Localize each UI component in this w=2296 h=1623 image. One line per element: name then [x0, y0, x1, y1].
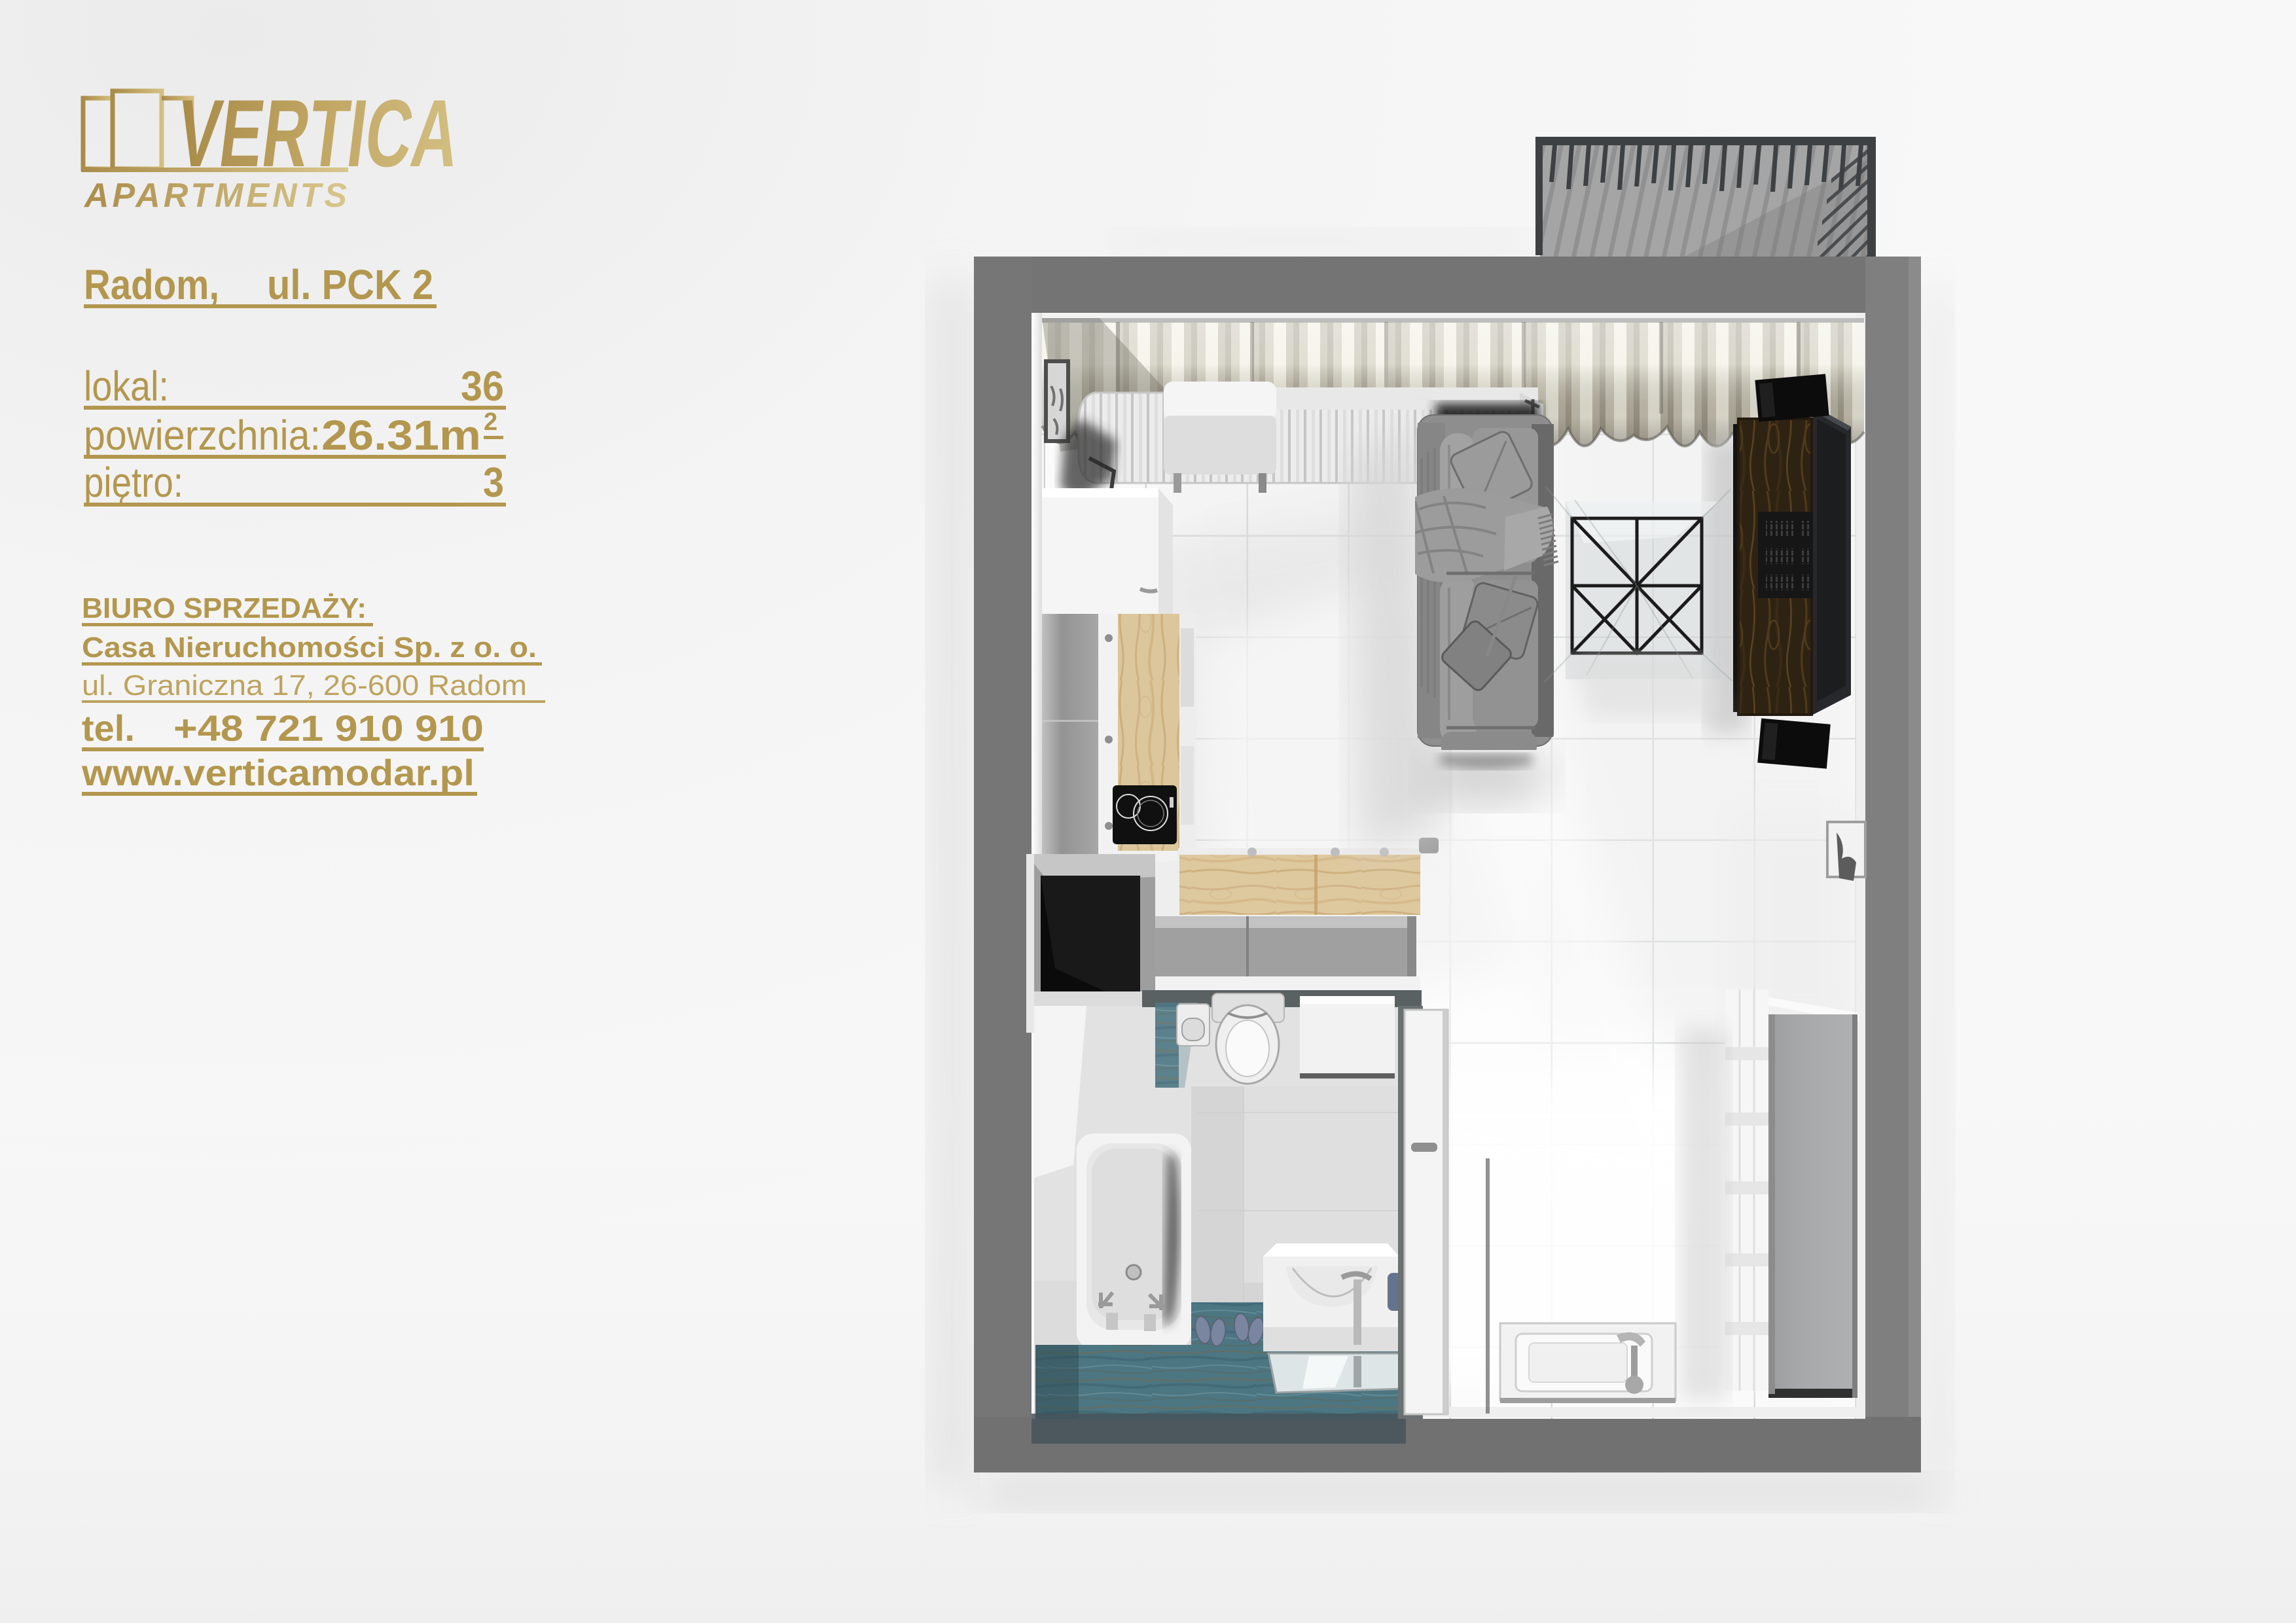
svg-text:+48 721 910 910: +48 721 910 910: [173, 707, 484, 749]
svg-text:piętro:: piętro:: [84, 459, 183, 506]
svg-text:BIURO SPRZEDAŻY:: BIURO SPRZEDAŻY:: [82, 592, 367, 624]
svg-text:APARTMENTS: APARTMENTS: [83, 177, 347, 215]
svg-text:2: 2: [484, 408, 497, 436]
svg-text:lokal:: lokal:: [84, 363, 169, 410]
svg-text:36: 36: [461, 363, 504, 410]
svg-text:3: 3: [483, 459, 504, 506]
svg-text:ul. Graniczna 17, 26-600 Radom: ul. Graniczna 17, 26-600 Radom: [82, 669, 527, 702]
svg-text:VERTICA: VERTICA: [171, 79, 465, 187]
svg-text:Casa Nieruchomości Sp. z o. o.: Casa Nieruchomości Sp. z o. o.: [82, 632, 537, 664]
svg-text:Radom,: Radom,: [84, 261, 219, 308]
svg-text:www.verticamodar.pl: www.verticamodar.pl: [81, 752, 475, 793]
svg-text:ul. PCK 2: ul. PCK 2: [267, 261, 433, 308]
svg-text:powierzchnia:: powierzchnia:: [84, 412, 321, 459]
svg-text:26.31m: 26.31m: [321, 412, 481, 459]
svg-text:tel.: tel.: [82, 707, 135, 749]
